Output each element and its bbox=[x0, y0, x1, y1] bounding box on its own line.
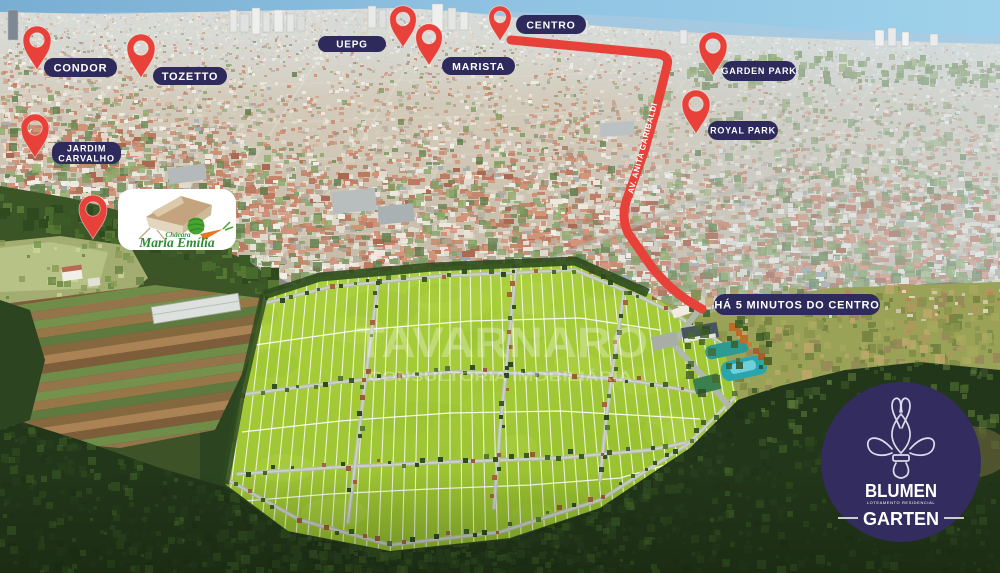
svg-text:LOTEAMENTO RESIDENCIAL: LOTEAMENTO RESIDENCIAL bbox=[867, 500, 936, 505]
svg-text:UEPG: UEPG bbox=[336, 40, 368, 51]
svg-text:ROYAL PARK: ROYAL PARK bbox=[710, 126, 776, 136]
svg-text:GARDEN PARK: GARDEN PARK bbox=[721, 66, 796, 76]
svg-text:TAVARNARO: TAVARNARO bbox=[356, 319, 648, 367]
svg-text:CARVALHO: CARVALHO bbox=[58, 154, 115, 164]
svg-text:Maria Emília: Maria Emília bbox=[138, 235, 215, 250]
svg-text:GARTEN: GARTEN bbox=[863, 509, 939, 529]
svg-text:HÁ 5 MINUTOS DO CENTRO: HÁ 5 MINUTOS DO CENTRO bbox=[714, 299, 879, 312]
svg-text:TOZETTO: TOZETTO bbox=[162, 71, 219, 83]
svg-text:MARISTA: MARISTA bbox=[452, 61, 505, 73]
svg-text:CENTRO: CENTRO bbox=[526, 19, 575, 31]
svg-text:BLUMEN: BLUMEN bbox=[865, 481, 937, 501]
svg-text:CONSULTORIA IMOBILIÁRIA: CONSULTORIA IMOBILIÁRIA bbox=[368, 368, 632, 384]
svg-text:CONDOR: CONDOR bbox=[54, 63, 108, 75]
svg-text:JARDIM: JARDIM bbox=[67, 144, 106, 154]
